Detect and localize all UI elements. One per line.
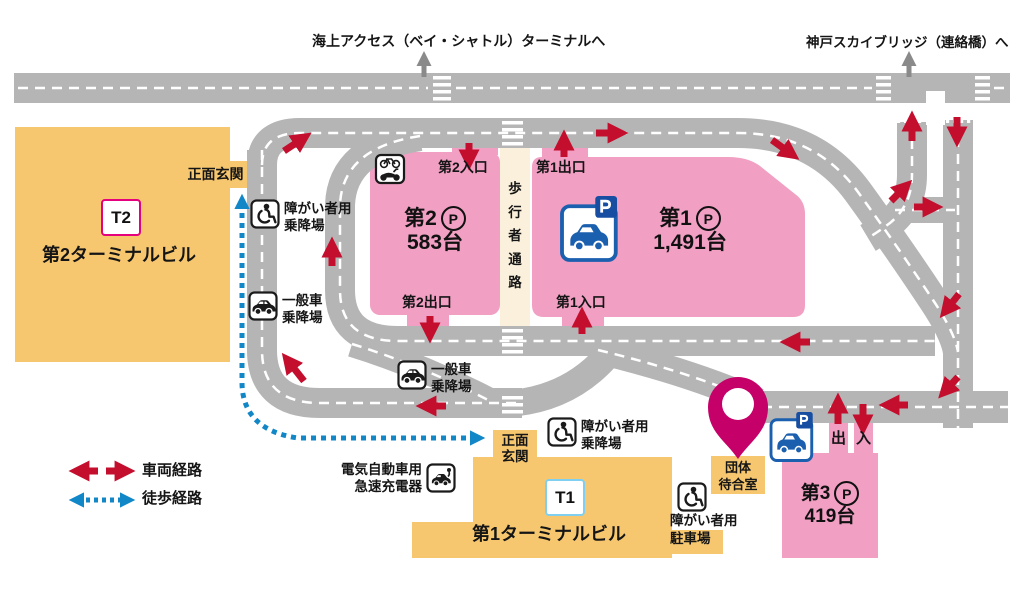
p1-capacity: 1,491台 — [653, 231, 727, 255]
t2-code-badge: T2 — [101, 199, 141, 236]
t1-main-entrance-label: 正面 玄関 — [493, 433, 537, 464]
p3-exit-label: 出 — [829, 430, 848, 447]
sky-bridge-label: 神戸スカイブリッジ（連絡橋）へ — [806, 34, 1009, 51]
pedestrian-corridor-label: 歩 行 者 通 路 — [500, 177, 530, 295]
mid-general-stop-label: 一般車 乗降場 — [431, 361, 472, 395]
p2-entrance-label: 第2入口 — [438, 159, 488, 176]
p3-circle-p-icon: P — [834, 481, 859, 506]
p3-capacity: 419台 — [805, 506, 856, 528]
t1-disabled-stop-label: 障がい者用 乗降場 — [581, 418, 649, 452]
p1-circle-p-icon: P — [696, 206, 721, 231]
p3-name: 第3 — [801, 483, 831, 505]
legend-arrows — [78, 471, 126, 500]
disabled-parking-label: 障がい者用 駐車場 — [670, 512, 738, 548]
p1-entrance-label: 第1入口 — [556, 294, 606, 311]
t2-name-label: 第2ターミナルビル — [42, 245, 196, 265]
t1-code-badge: T1 — [545, 479, 585, 516]
parking2-label: 第2P 583台 — [372, 206, 498, 255]
group-waiting-room-label: 団体 待合室 — [711, 459, 765, 493]
p2-circle-p-icon: P — [441, 206, 466, 231]
p1-name: 第1 — [659, 207, 692, 231]
p2-capacity: 583台 — [407, 231, 463, 255]
t2-general-stop-label: 一般車 乗降場 — [282, 292, 323, 326]
p1-exit-label: 第1出口 — [536, 159, 586, 176]
t2-disabled-stop-label: 障がい者用 乗降場 — [284, 200, 352, 234]
t1-name-label: 第1ターミナルビル — [472, 524, 626, 544]
legend-vehicle-route-label: 車両経路 — [142, 462, 202, 479]
location-pin-icon — [708, 377, 768, 459]
sea-access-label: 海上アクセス（ベイ・シャトル）ターミナルへ — [312, 33, 605, 50]
p3-entrance-label: 入 — [854, 430, 873, 447]
t2-main-entrance-label: 正面玄関 — [183, 166, 248, 183]
airport-access-map: 海上アクセス（ベイ・シャトル）ターミナルへ 神戸スカイブリッジ（連絡橋）へ 正面… — [0, 0, 1024, 593]
p2-exit-label: 第2出口 — [402, 294, 452, 311]
legend-walking-route-label: 徒歩経路 — [142, 490, 202, 507]
p2-name: 第2 — [404, 207, 437, 231]
parking1-label: 第1P 1,491台 — [622, 206, 758, 255]
parking3-label: 第3P 419台 — [784, 481, 876, 528]
ev-charger-label: 電気自動車用 急速充電器 — [326, 461, 422, 495]
